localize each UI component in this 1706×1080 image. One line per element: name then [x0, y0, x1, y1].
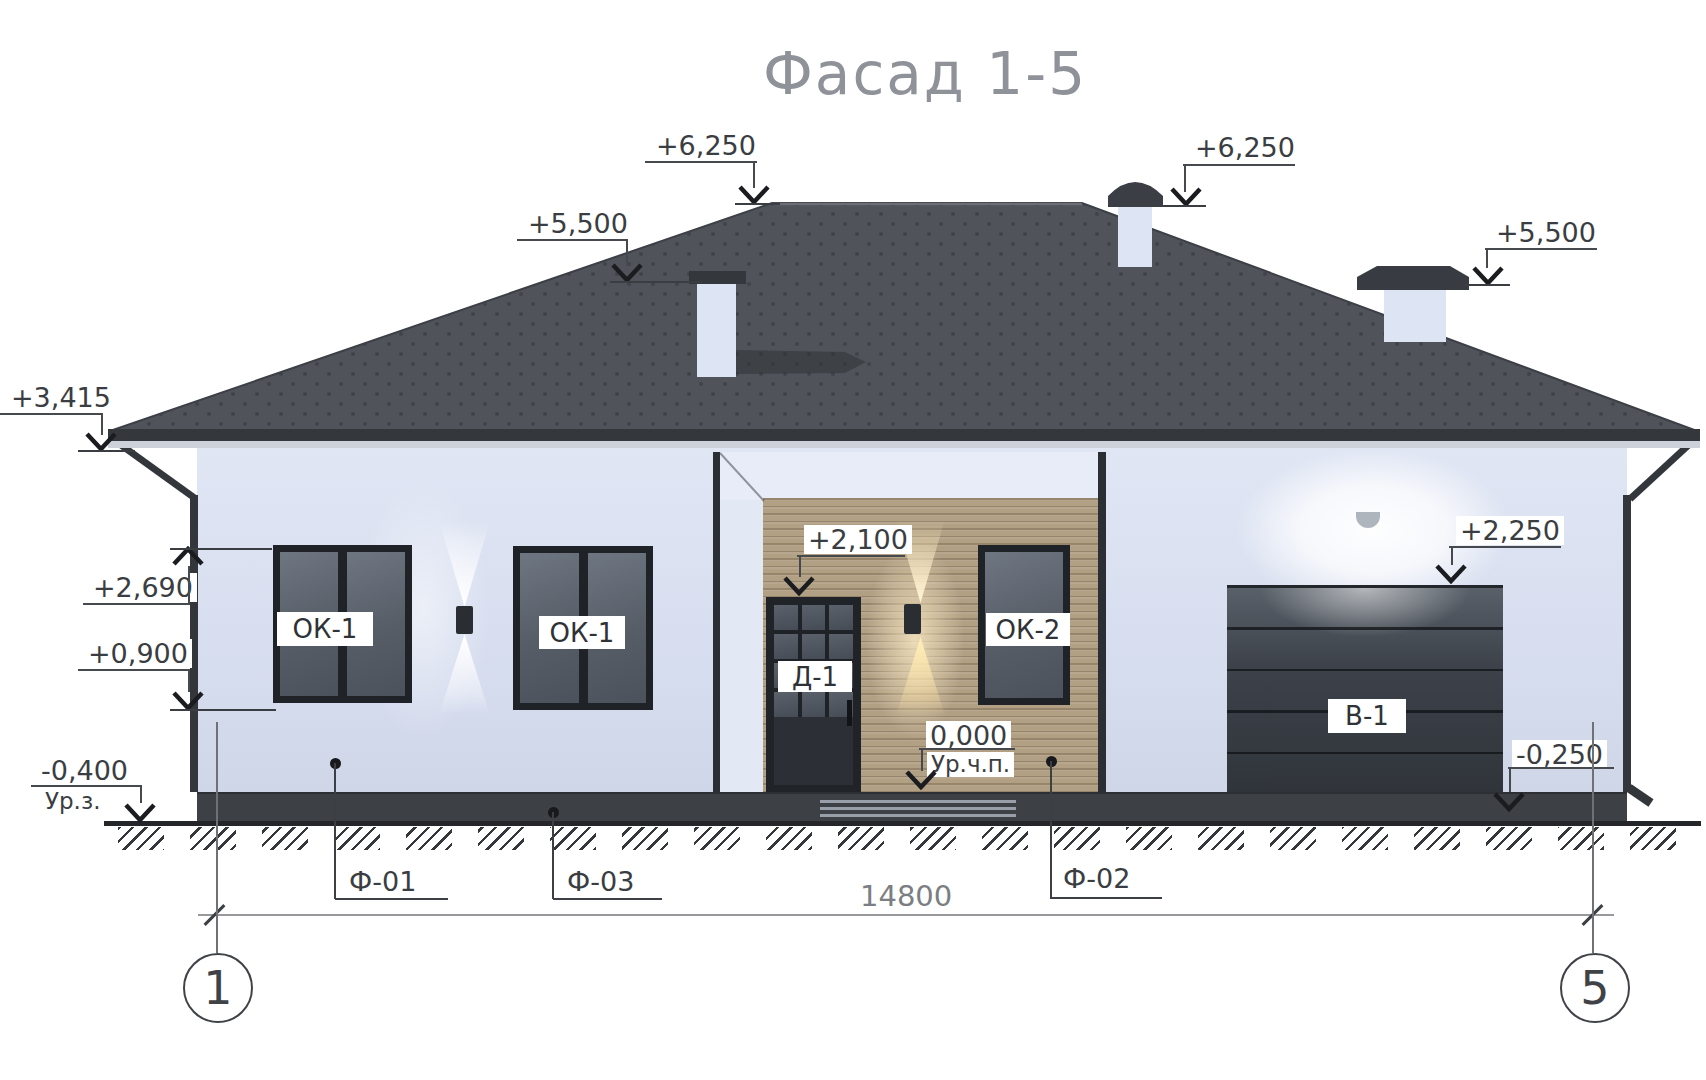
- elevation-drop-line: [921, 750, 923, 771]
- elevation-mark-sublabel: Ур.ч.п.: [927, 752, 1014, 777]
- callout-leader: [1050, 761, 1052, 898]
- elevation-drop-line: [188, 566, 190, 604]
- axis-number: 5: [1580, 961, 1609, 1015]
- elevation-flag-line: [517, 239, 628, 241]
- elevation-flag-line: [31, 785, 142, 787]
- level-line: [170, 709, 276, 711]
- axis-line-1: [216, 722, 218, 953]
- elevation-flag-line: [919, 748, 1015, 750]
- elevation-arrow-icon: [904, 770, 938, 790]
- axis-number: 1: [203, 961, 232, 1015]
- downspout-left: [114, 440, 196, 499]
- elevation-flag-line: [1485, 248, 1597, 250]
- elevation-mark-label: +6,250: [652, 131, 760, 160]
- elevation-arrow-icon: [1471, 266, 1505, 286]
- elevation-arrow-icon: [1434, 564, 1468, 584]
- drawing-title: Фасад 1-5: [690, 40, 1160, 108]
- level-line: [78, 450, 135, 452]
- level-line: [1460, 284, 1510, 286]
- callout-underline: [335, 898, 448, 900]
- elevation-drop-line: [1451, 547, 1453, 565]
- elevation-flag-line: [78, 669, 190, 671]
- chimney-right-cap: [1357, 266, 1469, 290]
- elevation-mark-label: +5,500: [1492, 218, 1600, 247]
- elevation-drop-line: [799, 556, 801, 577]
- downspout-right: [1630, 440, 1694, 499]
- elevation-flag-line: [797, 555, 905, 557]
- hip-roof: [110, 203, 1697, 431]
- window-label: ОК-1: [539, 616, 625, 649]
- garage-door-label: В-1: [1328, 699, 1406, 733]
- elevation-arrow-icon: [610, 263, 644, 283]
- elevation-flag-line: [1449, 546, 1561, 548]
- elevation-mark-sublabel: Ур.з.: [41, 789, 104, 814]
- chimney-mid-cap: [1108, 182, 1163, 207]
- elevation-mark-label: +0,900: [84, 639, 192, 668]
- level-line: [1156, 205, 1206, 207]
- elevation-mark-label: +3,415: [7, 383, 115, 412]
- elevation-mark-label: +2,100: [804, 525, 912, 554]
- elevation-arrow-icon: [737, 185, 771, 205]
- foundation-callout: Ф-03: [567, 866, 634, 897]
- facade-1-5-drawing: Фасад 1-5 +6,250 +6,250 +5,500 +5,500 +3…: [0, 0, 1706, 1080]
- chimney-mid-body: [1118, 207, 1152, 267]
- elevation-arrow-icon: [171, 691, 205, 711]
- downspout-right-pipe: [1623, 495, 1631, 792]
- elevation-flag-line: [1508, 767, 1614, 769]
- chimney-right-body: [1384, 290, 1446, 342]
- dimension-value: 14800: [860, 879, 952, 913]
- elevation-flag-line: [1183, 164, 1295, 166]
- elevation-mark-label: +5,500: [524, 209, 632, 238]
- window-label: ОК-1: [277, 612, 373, 646]
- elevation-arrow-icon: [123, 803, 157, 823]
- porch-ceiling-edge: [720, 453, 764, 501]
- elevation-mark-label: -0,400: [37, 756, 132, 785]
- foundation-callout: Ф-01: [349, 866, 416, 897]
- door-label: Д-1: [778, 661, 852, 692]
- elevation-mark-label: 0,000: [926, 721, 1011, 750]
- elevation-flag-line: [645, 161, 757, 163]
- axis-line-5: [1592, 722, 1594, 953]
- downspout-right-elbow: [1629, 788, 1651, 803]
- callout-underline: [1050, 897, 1162, 899]
- elevation-arrow-icon: [1169, 187, 1203, 207]
- elevation-arrow-icon: [782, 576, 816, 596]
- dimension-line: [198, 914, 1614, 916]
- eave-fascia: [108, 429, 1700, 441]
- elevation-flag-line: [0, 413, 103, 415]
- level-line: [735, 203, 780, 205]
- elevation-drop-line: [188, 670, 190, 692]
- axis-bubble-1: 1: [183, 953, 253, 1023]
- elevation-mark-label: +6,250: [1191, 133, 1299, 162]
- elevation-arrow-icon: [84, 432, 118, 452]
- elevation-mark-label: +2,250: [1456, 516, 1564, 545]
- chimney-shadow: [736, 350, 866, 374]
- eave-soffit-line: [108, 441, 1700, 448]
- level-line: [170, 548, 272, 550]
- foundation-callout: Ф-02: [1063, 863, 1130, 894]
- callout-leader: [334, 763, 336, 899]
- callout-underline: [553, 898, 662, 900]
- elevation-flag-line: [83, 603, 190, 605]
- elevation-arrow-icon: [1492, 792, 1526, 812]
- chimney-left-body: [697, 284, 736, 377]
- callout-leader: [552, 812, 554, 899]
- window-label: ОК-2: [986, 613, 1070, 646]
- elevation-drop-line: [140, 786, 142, 803]
- level-line: [610, 281, 702, 283]
- elevation-drop-line: [1509, 768, 1511, 792]
- axis-bubble-5: 5: [1560, 953, 1630, 1023]
- elevation-mark-label: +2,690: [89, 573, 197, 602]
